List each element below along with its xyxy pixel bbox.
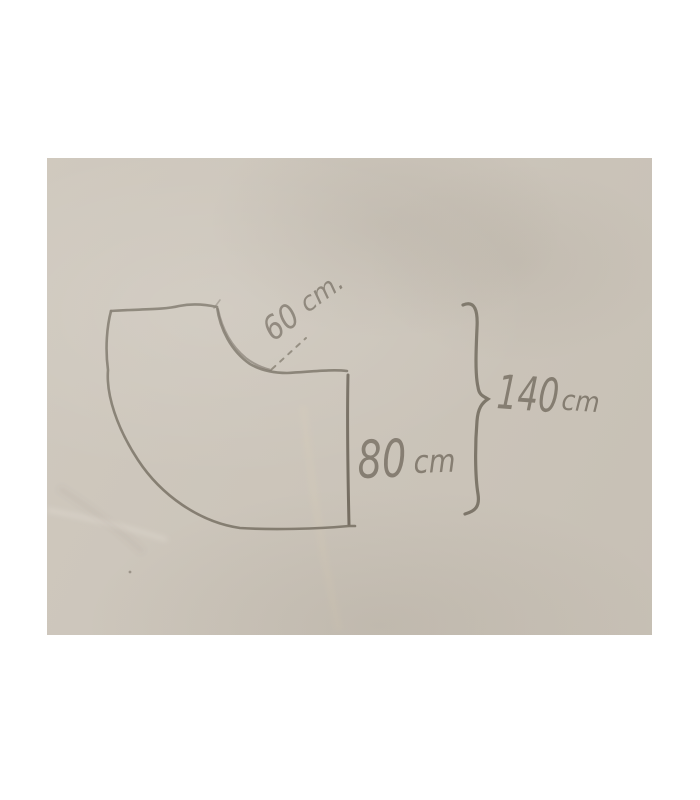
overall-dimension-value: 140: [495, 365, 561, 424]
paper-speck: [129, 571, 132, 574]
overall-dimension-unit: cm: [561, 384, 601, 420]
side-dimension-unit: cm: [413, 442, 456, 481]
sketch-svg: 60 cm. 80 cm 140 cm: [47, 158, 652, 635]
side-dimension-value: 80: [356, 429, 407, 491]
worktop-right-edge: [348, 375, 349, 525]
sketch-photo: 60 cm. 80 cm 140 cm: [47, 158, 652, 635]
photo-page: 60 cm. 80 cm 140 cm: [0, 0, 700, 800]
